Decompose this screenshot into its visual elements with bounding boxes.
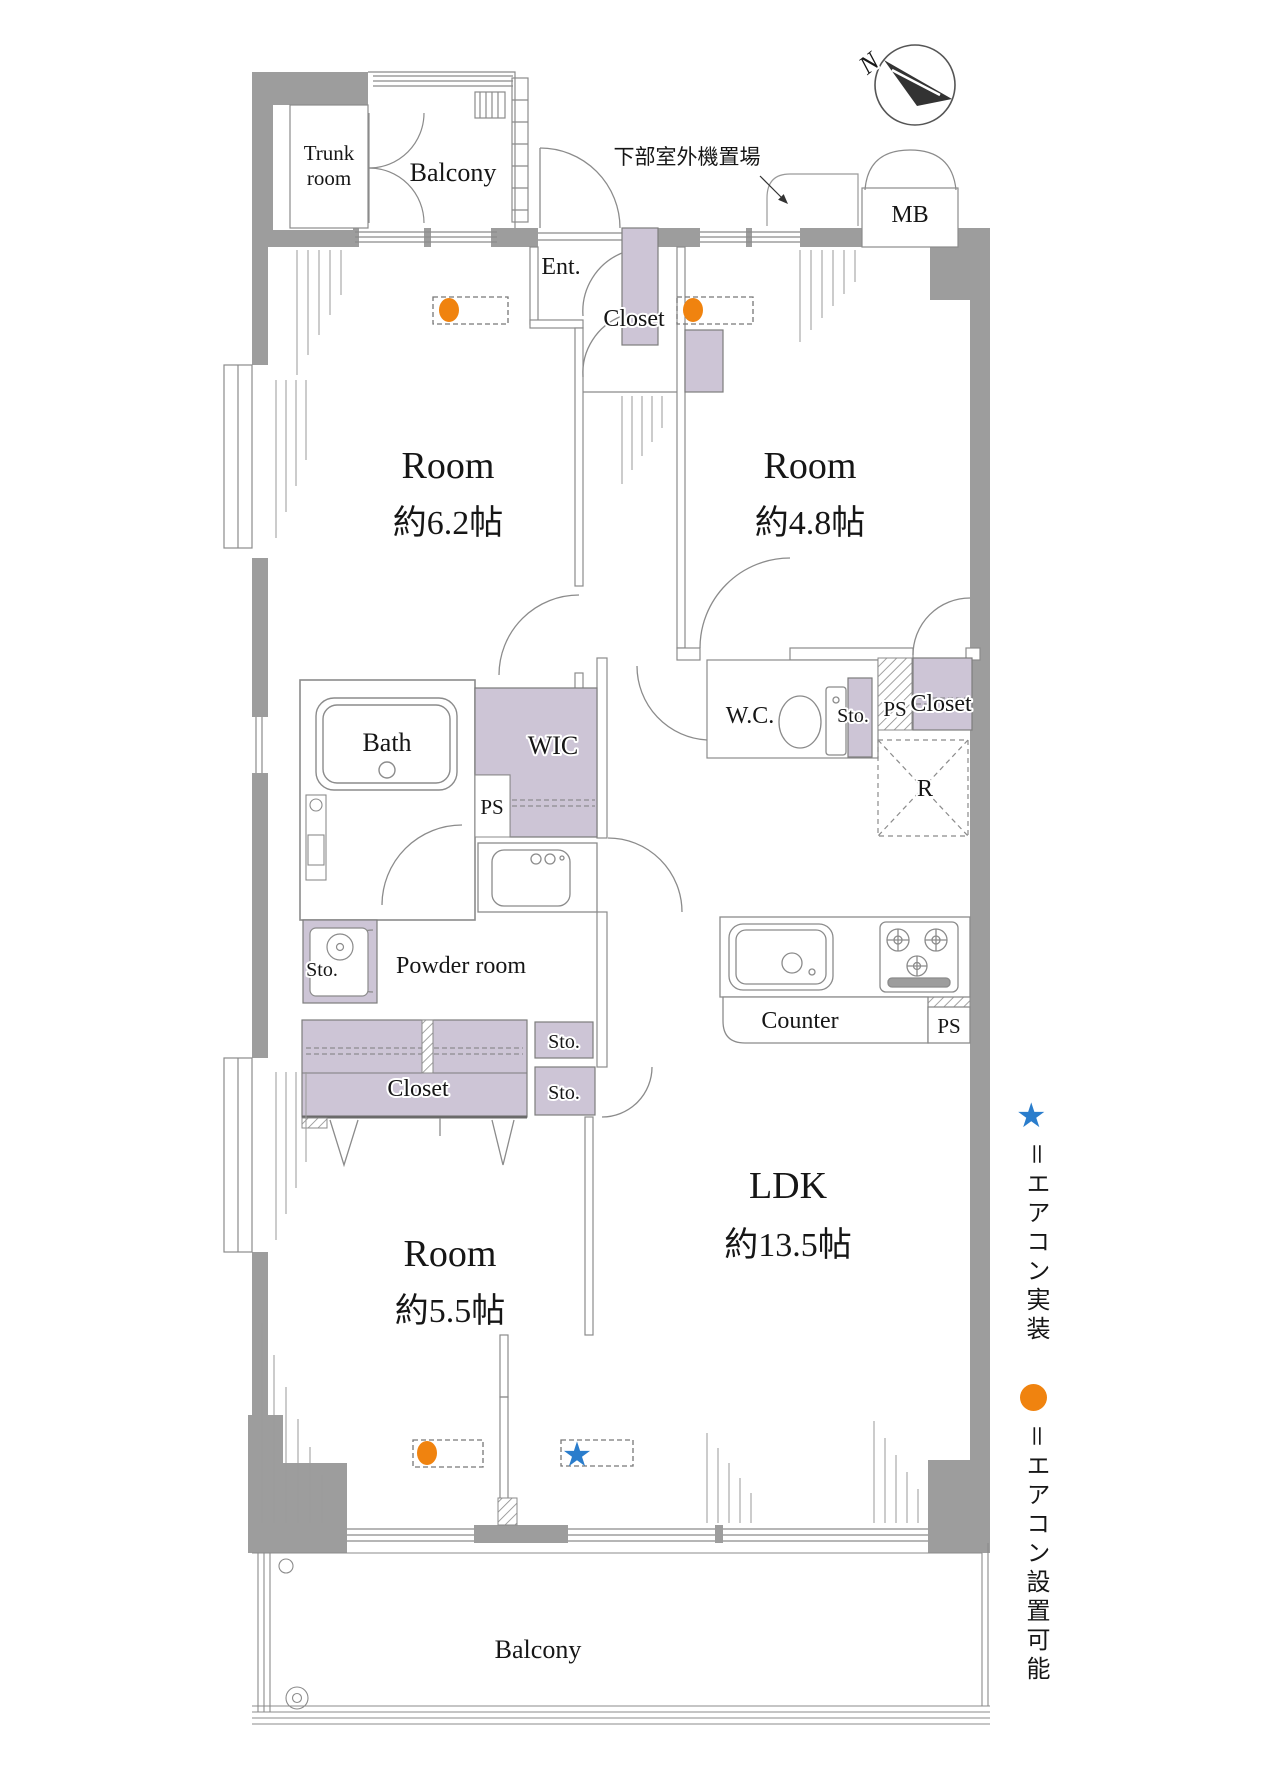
balcony-top-label: Balcony	[410, 158, 497, 187]
wc-label: W.C.	[726, 703, 774, 729]
legend-dot-text: ＝エアコン設置可能	[1018, 1424, 1053, 1685]
folding-door-marks	[330, 1118, 514, 1165]
meter-box	[862, 150, 958, 247]
aircon-possible-dot-icon	[417, 1441, 437, 1465]
ldk-name: LDK	[749, 1165, 828, 1207]
ent-label: Ent.	[541, 254, 580, 280]
hall-cabinet-area	[685, 330, 723, 392]
bath-label: Bath	[362, 728, 411, 757]
outdoor-unit-label: 下部室外機置場	[614, 145, 761, 169]
room55-size: 約5.5帖	[395, 1292, 506, 1330]
balcony-bottom-label: Balcony	[495, 1635, 582, 1664]
ps-kitchen-label: PS	[937, 1014, 960, 1038]
powder-room-label: Powder room	[396, 953, 526, 979]
legend-dot-icon	[1020, 1384, 1047, 1411]
aircon-possible-dot-icon	[439, 298, 459, 322]
room55-name: Room	[404, 1233, 497, 1275]
ps-wc-label: PS	[883, 697, 906, 721]
compass-icon: N	[852, 45, 955, 125]
sto-wc-label: Sto.	[837, 705, 869, 727]
entry-closet-label: Closet	[603, 306, 665, 332]
closet48-label: Closet	[910, 691, 972, 717]
room62-size: 約6.2帖	[393, 504, 504, 542]
floorplan-page: ★ N Trunk room Balcony 下部室外機置場 MB Ent. C…	[0, 0, 1276, 1790]
wic-label: WIC	[528, 731, 579, 760]
mb-label: MB	[891, 202, 928, 228]
bottom-balcony	[252, 1543, 990, 1724]
trunk-room-label2: room	[307, 166, 351, 190]
sto-powder-label: Sto.	[306, 959, 338, 981]
aircon-installed-star-icon: ★	[562, 1437, 592, 1474]
room48-name: Room	[764, 445, 857, 487]
kitchen	[720, 917, 970, 1043]
room62-name: Room	[402, 445, 495, 487]
legend-star-text: ＝エアコン実装	[1018, 1142, 1053, 1345]
aircon-possible-dot-icon	[683, 298, 703, 322]
floorplan-drawing: ★ N Trunk room Balcony 下部室外機置場 MB Ent. C…	[0, 0, 1276, 1790]
ps-wic-label: PS	[480, 795, 503, 819]
trunk-room-label: Trunk	[304, 141, 355, 165]
ldk-size: 約13.5帖	[724, 1226, 852, 1264]
legend-star-icon: ★	[1016, 1100, 1046, 1134]
fridge-label: R	[917, 776, 933, 802]
vanity-sink	[478, 843, 597, 912]
interior-walls	[300, 247, 980, 1525]
sto2-label: Sto.	[548, 1082, 580, 1104]
sto1-label: Sto.	[548, 1031, 580, 1053]
room48-size: 約4.8帖	[755, 504, 866, 542]
closet55-label: Closet	[387, 1076, 449, 1102]
room55-closet-area	[302, 1020, 527, 1117]
counter-label: Counter	[761, 1008, 838, 1034]
outdoor-unit-area	[760, 174, 858, 226]
